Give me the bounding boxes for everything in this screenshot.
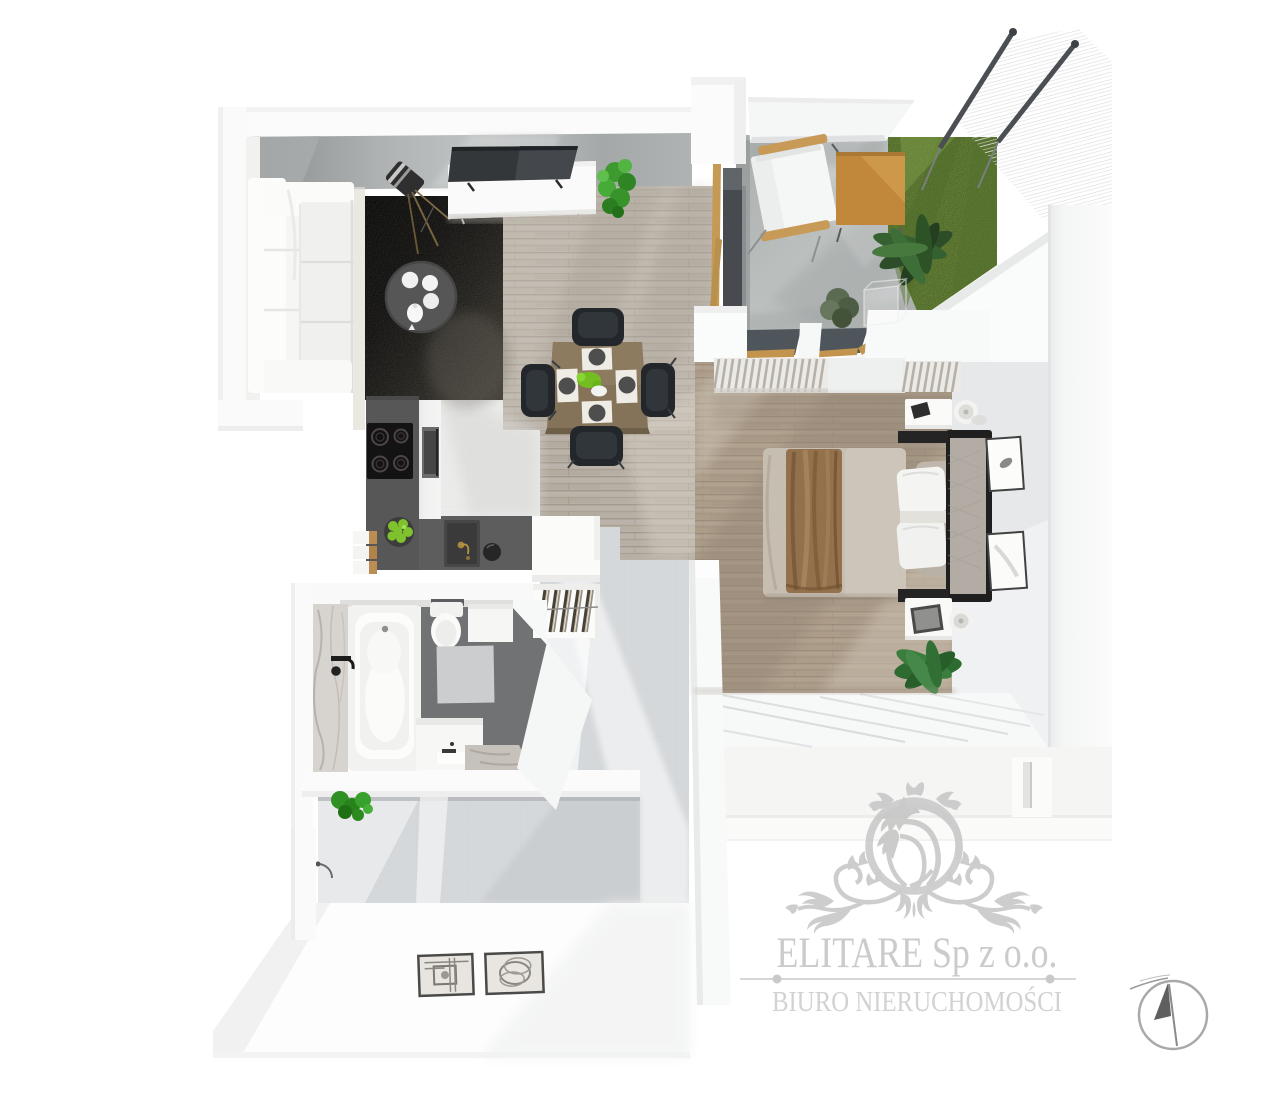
svg-text:BIURO NIERUCHOMOŚCI: BIURO NIERUCHOMOŚCI <box>772 985 1062 1018</box>
svg-text:ELITARE Sp z o.o.: ELITARE Sp z o.o. <box>777 930 1058 977</box>
